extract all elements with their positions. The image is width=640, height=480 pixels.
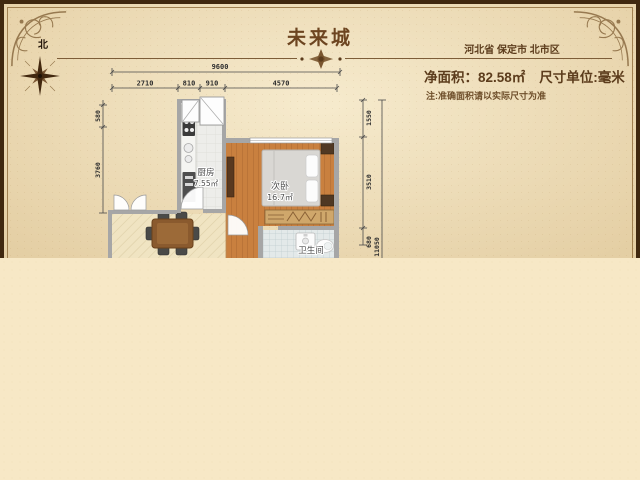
floor-plan: 9600 2710 810 910 4570 580 3760 1550 351… (85, 60, 397, 258)
net-area-label: 净面积： (424, 70, 478, 85)
dim-segment: 810 (183, 80, 196, 88)
net-area-line: 净面积：82.58㎡尺寸单位:毫米 (424, 66, 625, 86)
dim-segment: 4570 (273, 80, 290, 88)
wardrobe (265, 210, 334, 224)
dim-segment: 1550 (365, 110, 373, 126)
room-label-bedroom: 次卧 (271, 180, 289, 192)
accuracy-note: 注:准确面积请以实际尺寸为准 (426, 89, 546, 102)
dim-total-height: 11050 (373, 237, 381, 257)
divider-line (345, 58, 612, 59)
entry-door-arc (114, 195, 129, 210)
dim-segment: 580 (94, 110, 102, 122)
kitchen-window (182, 97, 224, 125)
dim-segment: 2710 (137, 80, 154, 88)
net-area-value: 82.58㎡ (478, 70, 525, 85)
dim-segment: 910 (206, 80, 219, 88)
room-area-kitchen: 7.55㎡ (194, 179, 219, 188)
project-location: 河北省 保定市 北市区 (420, 41, 604, 56)
room-area-bedroom: 16.7㎡ (267, 193, 293, 202)
room-label-kitchen: 厨房 (197, 167, 214, 178)
room-label-bathroom: 卫生间 (298, 245, 324, 256)
dim-segment: 680 (365, 236, 373, 248)
north-label: 北 (30, 36, 56, 51)
compass-rose-icon (18, 54, 62, 98)
dim-total-width: 9600 (212, 63, 229, 71)
unit-text: 尺寸单位:毫米 (539, 70, 625, 85)
divider-line (57, 58, 297, 59)
border-top (0, 0, 640, 4)
entry-door-arc (131, 195, 146, 210)
unrendered-background (0, 258, 640, 480)
dim-segment: 3510 (365, 174, 373, 190)
floorplan-page: 未来城 河北省 保定市 北市区 净面积：82.58㎡尺寸单位:毫米 注:准确面积… (0, 0, 640, 258)
dim-segment: 3760 (94, 162, 102, 178)
bedroom-window (250, 138, 332, 143)
tv-cabinet (227, 157, 234, 197)
